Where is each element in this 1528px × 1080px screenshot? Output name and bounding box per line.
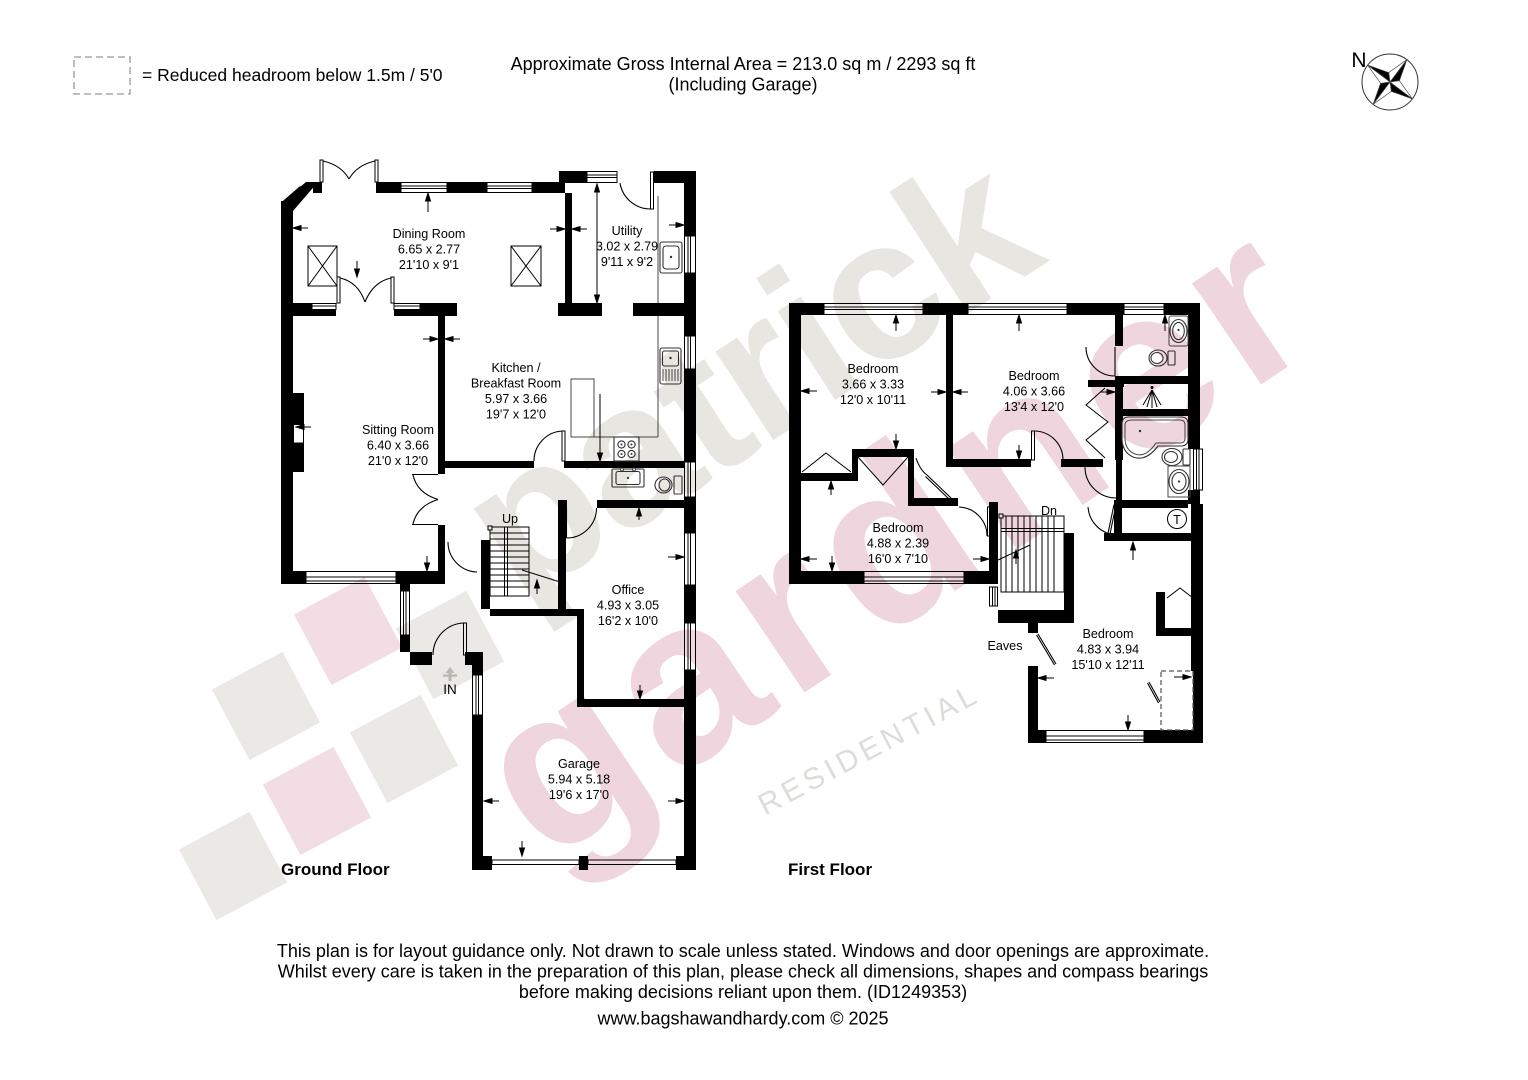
svg-text:Bedroom: Bedroom (1082, 627, 1133, 641)
svg-text:6.40 x 3.66: 6.40 x 3.66 (367, 439, 429, 453)
svg-text:3.02 x 2.79: 3.02 x 2.79 (596, 240, 658, 254)
svg-text:N: N (1351, 49, 1366, 72)
svg-text:before making decisions relian: before making decisions reliant upon the… (519, 982, 967, 1002)
svg-text:Utility: Utility (612, 224, 643, 238)
svg-text:T: T (1173, 513, 1181, 527)
svg-text:(Including Garage): (Including Garage) (668, 75, 817, 95)
svg-text:15'10 x 12'11: 15'10 x 12'11 (1071, 658, 1144, 672)
svg-text:Kitchen /: Kitchen / (491, 361, 541, 375)
svg-text:4.83 x 3.94: 4.83 x 3.94 (1077, 643, 1139, 657)
svg-text:This plan is for layout guidan: This plan is for layout guidance only. N… (277, 941, 1209, 961)
svg-text:Whilst every care is taken in: Whilst every care is taken in the prepar… (278, 962, 1209, 982)
svg-text:www.bagshawandhardy.com © 2025: www.bagshawandhardy.com © 2025 (596, 1009, 888, 1029)
svg-text:= Reduced headroom below 1.5m: = Reduced headroom below 1.5m / 5'0 (142, 65, 443, 85)
svg-text:Eaves: Eaves (987, 639, 1022, 653)
svg-text:Ground Floor: Ground Floor (281, 860, 390, 879)
svg-text:21'0 x 12'0: 21'0 x 12'0 (368, 454, 428, 468)
svg-text:Approximate Gross Internal Are: Approximate Gross Internal Area = 213.0 … (511, 54, 976, 74)
svg-text:21'10 x 9'1: 21'10 x 9'1 (399, 258, 459, 272)
svg-text:9'11 x 9'2: 9'11 x 9'2 (601, 255, 653, 269)
svg-text:Sitting Room: Sitting Room (362, 423, 434, 437)
svg-text:6.65 x 2.77: 6.65 x 2.77 (398, 243, 460, 257)
svg-text:Dining Room: Dining Room (393, 227, 466, 241)
svg-text:First Floor: First Floor (788, 860, 872, 879)
